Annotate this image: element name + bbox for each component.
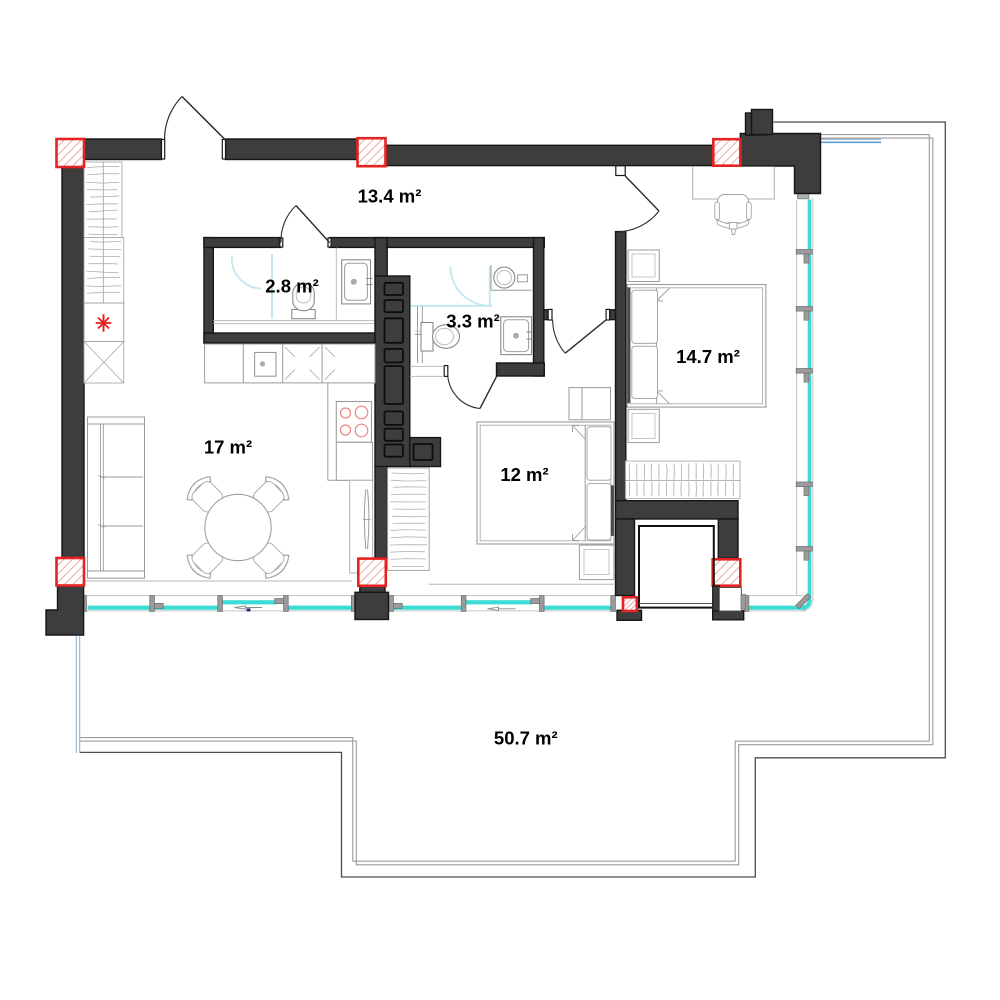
svg-text:13.4 m²: 13.4 m² [358,186,422,207]
svg-text:17 m²: 17 m² [204,437,252,458]
svg-text:3.3 m²: 3.3 m² [446,311,499,332]
svg-text:12 m²: 12 m² [500,464,548,485]
svg-text:14.7 m²: 14.7 m² [676,346,740,367]
svg-text:50.7 m²: 50.7 m² [494,727,558,748]
svg-text:2.8 m²: 2.8 m² [265,276,318,297]
